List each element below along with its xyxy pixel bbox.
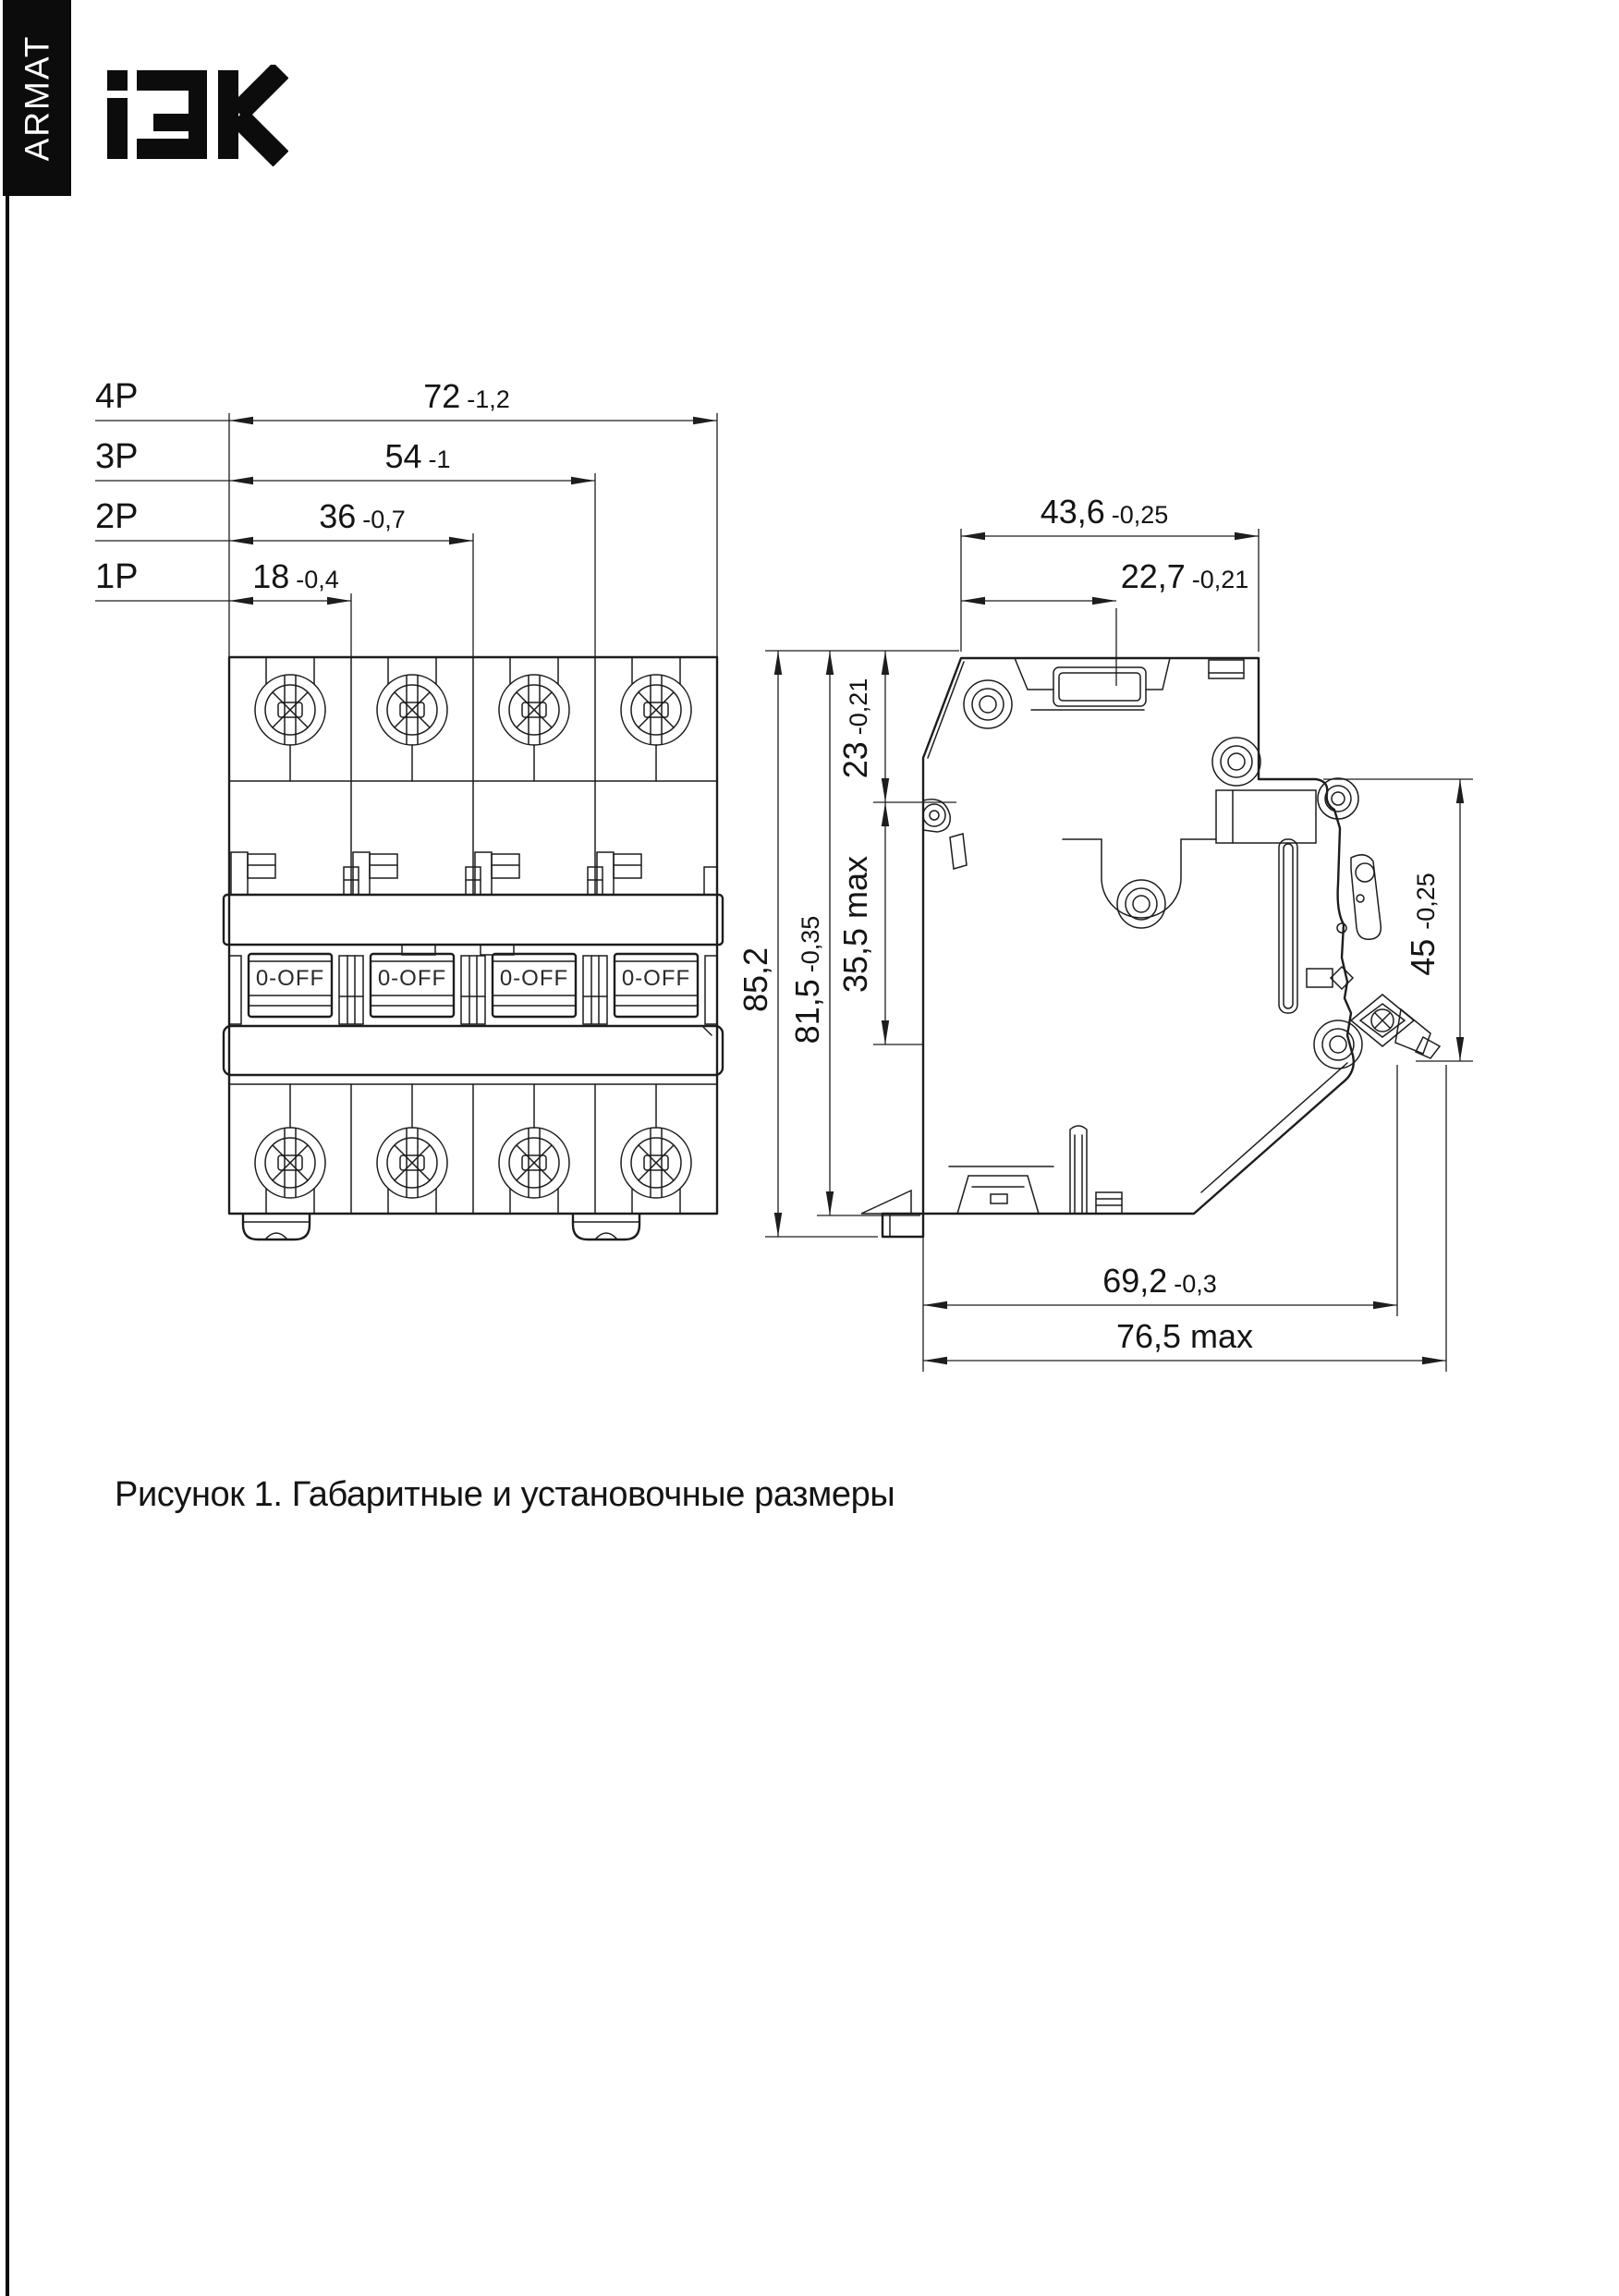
din-clips	[243, 1214, 639, 1240]
dim-value: 69,2-0,3	[1102, 1262, 1217, 1300]
dim-row-1p: 1P 18-0,4	[95, 557, 351, 601]
dim-value: 85,2	[736, 947, 774, 1012]
mid-tabs	[231, 852, 717, 895]
switch-state-label: 0-OFF	[622, 966, 690, 991]
screw-icon	[377, 1128, 447, 1198]
dim-value: 54-1	[384, 437, 450, 475]
screw-icon	[621, 675, 691, 745]
switch-state-label: 0-OFF	[378, 966, 446, 991]
screw-icon	[499, 1128, 569, 1198]
screw-icon	[499, 675, 569, 745]
screw-icon	[255, 1128, 325, 1198]
side-body-outline	[923, 658, 1354, 1214]
front-pole-dimensions: 4P 72-1,2 3P 54-1 2P 36-0,7	[95, 377, 717, 657]
dim-handle-offset: 22,7-0,21	[961, 557, 1248, 686]
dim-value: 22,7-0,21	[1121, 557, 1249, 595]
screw-bosses	[964, 680, 1362, 1069]
front-foot	[861, 1191, 923, 1237]
rocker-lever: 0-OFF	[493, 954, 576, 1017]
dim-value: 18-0,4	[252, 557, 339, 595]
dim-value: 72-1,2	[423, 377, 510, 415]
rocker-lever: 0-OFF	[249, 954, 332, 1017]
din-clip	[573, 1214, 639, 1240]
dim-value: 35,5 max	[836, 856, 874, 993]
lower-tie-band	[224, 1026, 723, 1075]
dim-value: 45-0,25	[1404, 873, 1442, 976]
pole-count-label: 1P	[95, 557, 138, 596]
technical-drawing: 4P 72-1,2 3P 54-1 2P 36-0,7	[0, 0, 1619, 2296]
dim-value: 23-0,21	[836, 678, 874, 779]
upper-tie-band	[224, 895, 723, 955]
screw-icon	[377, 675, 447, 745]
boss-icon	[1212, 738, 1260, 786]
pole-count-label: 3P	[95, 437, 138, 476]
front-body: 0-OFF 0-OFF 0-OFF	[224, 657, 723, 1240]
switch-state-label: 0-OFF	[256, 966, 324, 991]
switch-state-label: 0-OFF	[500, 966, 568, 991]
dim-max-depth: 76,5 max	[923, 1065, 1446, 1372]
side-dimensions: 43,6-0,25 22,7-0,21 23-0,21 35,5 max	[736, 493, 1473, 1372]
figure-caption: Рисунок 1. Габаритные и установочные раз…	[115, 1475, 946, 1515]
boss-icon	[964, 680, 1012, 728]
rocker-lever: 0-OFF	[615, 954, 698, 1017]
dim-value: 76,5 max	[1116, 1317, 1253, 1355]
rocker-lever: 0-OFF	[371, 954, 454, 1017]
tab	[475, 852, 519, 895]
tab	[231, 852, 275, 895]
rocker-levers: 0-OFF 0-OFF 0-OFF	[229, 954, 717, 1024]
dim-value: 81,5-0,35	[788, 916, 826, 1044]
boss-icon	[1318, 778, 1358, 819]
dim-row-4p: 4P 72-1,2	[95, 377, 717, 421]
divider-slots	[344, 867, 717, 895]
front-view: 4P 72-1,2 3P 54-1 2P 36-0,7	[95, 377, 723, 1240]
pole-count-label: 4P	[95, 377, 138, 416]
dim-value: 36-0,7	[319, 497, 406, 535]
dim-pad-zone: 35,5 max	[836, 802, 924, 1044]
side-interior-details	[923, 790, 1353, 1214]
pole-count-label: 2P	[95, 497, 138, 536]
screw-icon	[255, 675, 325, 745]
dim-row-3p: 3P 54-1	[95, 437, 595, 481]
side-view: 43,6-0,25 22,7-0,21 23-0,21 35,5 max	[736, 493, 1473, 1372]
boss-icon	[1117, 880, 1165, 928]
pole-dividers	[351, 657, 595, 1214]
rear-top-tab	[1209, 660, 1244, 678]
boss-icon	[1314, 1020, 1362, 1069]
tab	[597, 852, 641, 895]
datasheet-page: ARMAT IEK	[0, 0, 1619, 2296]
dim-row-2p: 2P 36-0,7	[95, 497, 473, 541]
din-clip	[243, 1214, 310, 1240]
dim-value: 43,6-0,25	[1041, 493, 1169, 531]
dim-din-recess: 45-0,25	[1323, 779, 1473, 1061]
handle-recess	[1015, 658, 1170, 710]
dim-top-to-pad: 23-0,21	[765, 651, 959, 802]
tab	[353, 852, 397, 895]
screw-icon	[621, 1128, 691, 1198]
